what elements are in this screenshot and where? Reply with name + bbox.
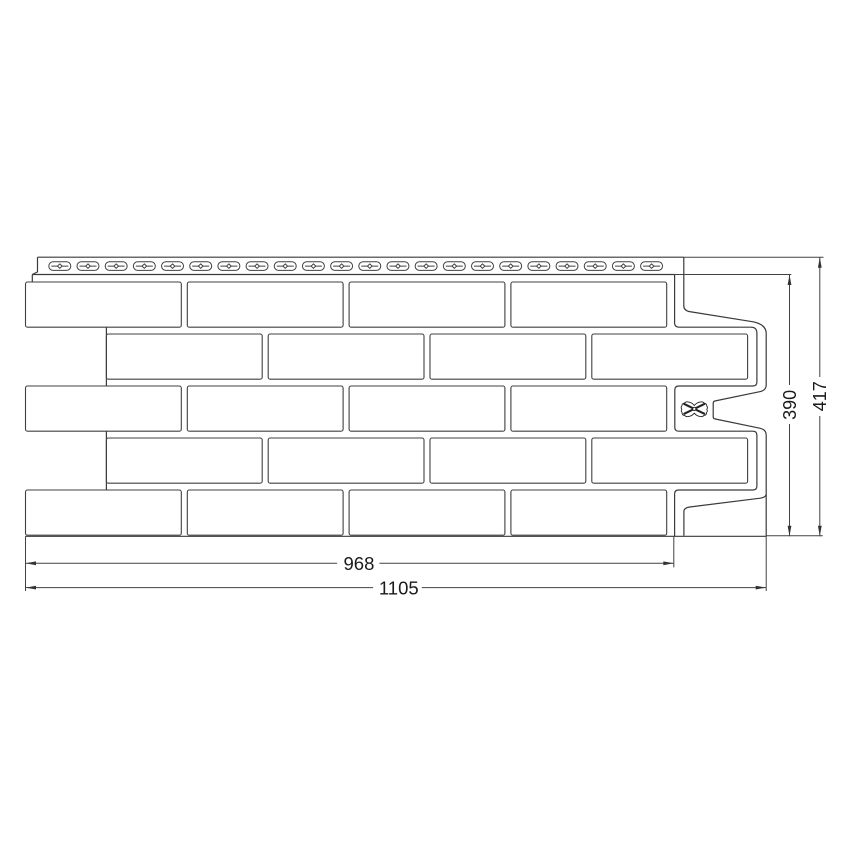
svg-text:417: 417 <box>810 381 830 411</box>
svg-text:968: 968 <box>344 553 375 574</box>
svg-text:1105: 1105 <box>379 577 419 598</box>
svg-text:390: 390 <box>780 390 800 420</box>
